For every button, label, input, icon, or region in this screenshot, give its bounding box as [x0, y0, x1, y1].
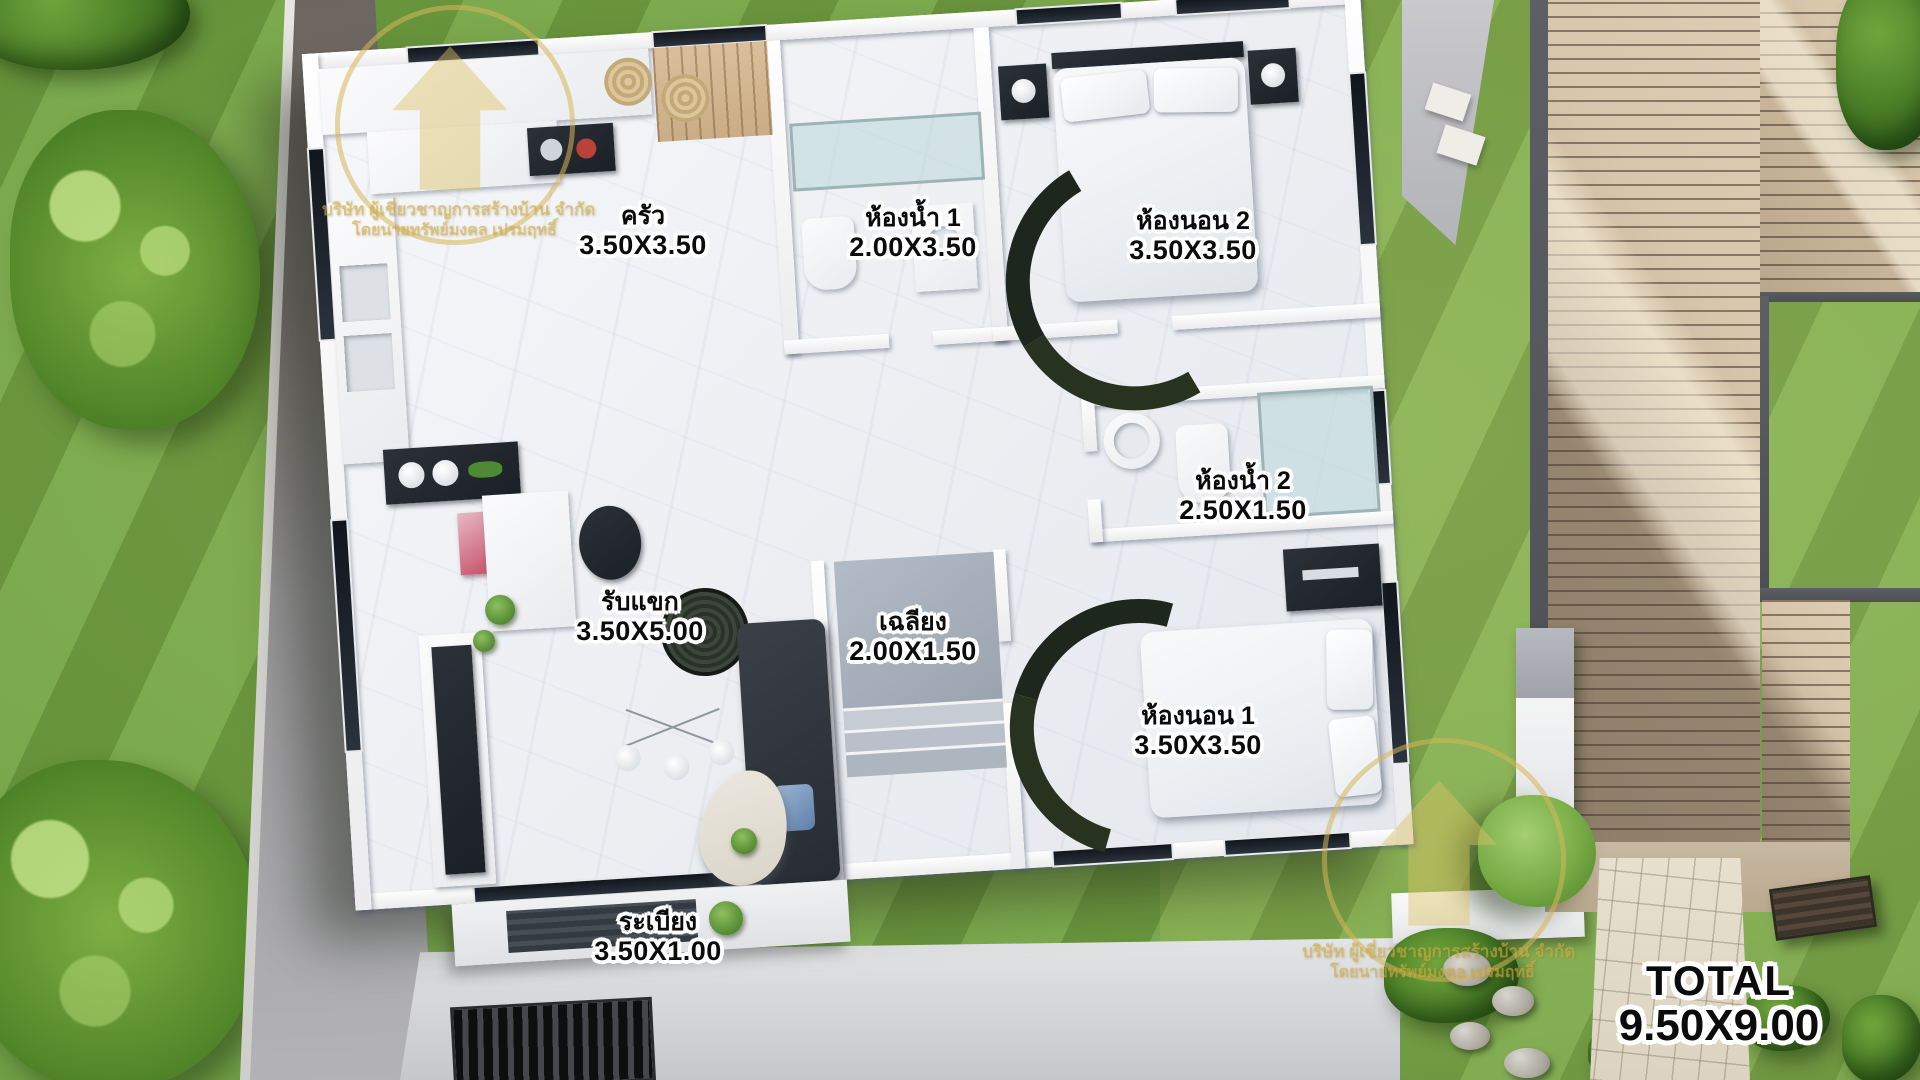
room-size: 3.50X3.50 [579, 230, 707, 260]
drain-grate [450, 997, 656, 1080]
chandelier-bulb [663, 753, 691, 781]
watermark-text-2: โดยนายทรัพย์มงคล เปรมฤทธิ์ [352, 218, 557, 243]
room-label-terrace: ระเบียง 3.50X1.00 [594, 908, 722, 966]
room-name: รับแขก [576, 588, 704, 616]
bedroom2-nightstand-right [1248, 48, 1299, 105]
room-name: เฉลียง [849, 608, 977, 636]
total-label: TOTAL 9.50X9.00 [1619, 959, 1820, 1049]
room-name: ห้องน้ำ 2 [1179, 467, 1307, 495]
pillow [1326, 629, 1373, 709]
lamp [1011, 78, 1036, 103]
room-name: ห้องนอน 1 [1134, 702, 1262, 730]
room-name: ห้องน้ำ 1 [849, 204, 977, 232]
room-size: 2.00X3.50 [849, 232, 977, 262]
room-label-bedroom1: ห้องนอน 1 3.50X3.50 [1134, 702, 1262, 760]
total-size: 9.50X9.00 [1619, 1003, 1820, 1049]
tree-top-right [1836, 0, 1920, 150]
bedroom2-nightstand-left [998, 63, 1049, 120]
room-name: ระเบียง [594, 908, 722, 936]
room-label-bathroom1: ห้องน้ำ 1 2.00X3.50 [849, 204, 977, 262]
basin-bowl [1113, 422, 1151, 460]
room-size: 3.50X3.50 [1134, 730, 1262, 760]
plate [432, 459, 460, 487]
bush-bottom-4 [1842, 995, 1920, 1080]
room-size: 3.50X5.00 [576, 616, 704, 646]
herb-garnish [468, 460, 503, 478]
room-size: 3.50X3.50 [1129, 235, 1257, 265]
chandelier-bulb [708, 738, 736, 766]
room-label-bathroom2: ห้องน้ำ 2 2.50X1.50 [1179, 467, 1307, 525]
chandelier [610, 677, 736, 784]
bedroom1-cabinet [1283, 544, 1383, 612]
table-plant [729, 826, 759, 856]
stepping-stone [1492, 986, 1534, 1016]
pillow [1154, 68, 1238, 113]
deck-patio [1762, 600, 1850, 852]
room-size: 2.00X1.50 [849, 636, 977, 666]
room-label-bedroom2: ห้องนอน 2 3.50X3.50 [1129, 207, 1257, 265]
sink-2 [344, 333, 395, 392]
stepping-stone [1450, 1022, 1490, 1050]
plate [398, 461, 426, 489]
bathroom1-shower-glass [789, 112, 985, 192]
deck-shadow [1762, 600, 1850, 852]
total-title: TOTAL [1619, 959, 1820, 1003]
deck-main [1548, 0, 1760, 856]
room-name: ครัว [579, 202, 707, 230]
room-label-living: รับแขก 3.50X5.00 [576, 588, 704, 646]
tv [1302, 567, 1359, 580]
deck-sunbeam [1548, 0, 1760, 856]
room-size: 3.50X1.00 [594, 936, 722, 966]
lamp [1260, 63, 1285, 88]
room-label-porch: เฉลียง 2.00X1.50 [849, 608, 977, 666]
garden-wall-cap [1516, 628, 1574, 698]
chandelier-bulb [614, 744, 642, 772]
room-size: 2.50X1.50 [1179, 495, 1307, 525]
wall-bath2-west-b [1087, 499, 1103, 543]
sink-1 [339, 263, 390, 322]
room-name: ห้องนอน 2 [1129, 207, 1257, 235]
stepping-stone [1504, 1048, 1550, 1078]
floor-plan-scene: ครัว 3.50X3.50 ห้องน้ำ 1 2.00X3.50 ห้องน… [0, 0, 1920, 1080]
room-label-kitchen: ครัว 3.50X3.50 [579, 202, 707, 260]
watermark-text-2: โดยนายทรัพย์มงคล เปรมฤทธิ์ [1330, 960, 1535, 985]
pot-red [576, 138, 597, 159]
